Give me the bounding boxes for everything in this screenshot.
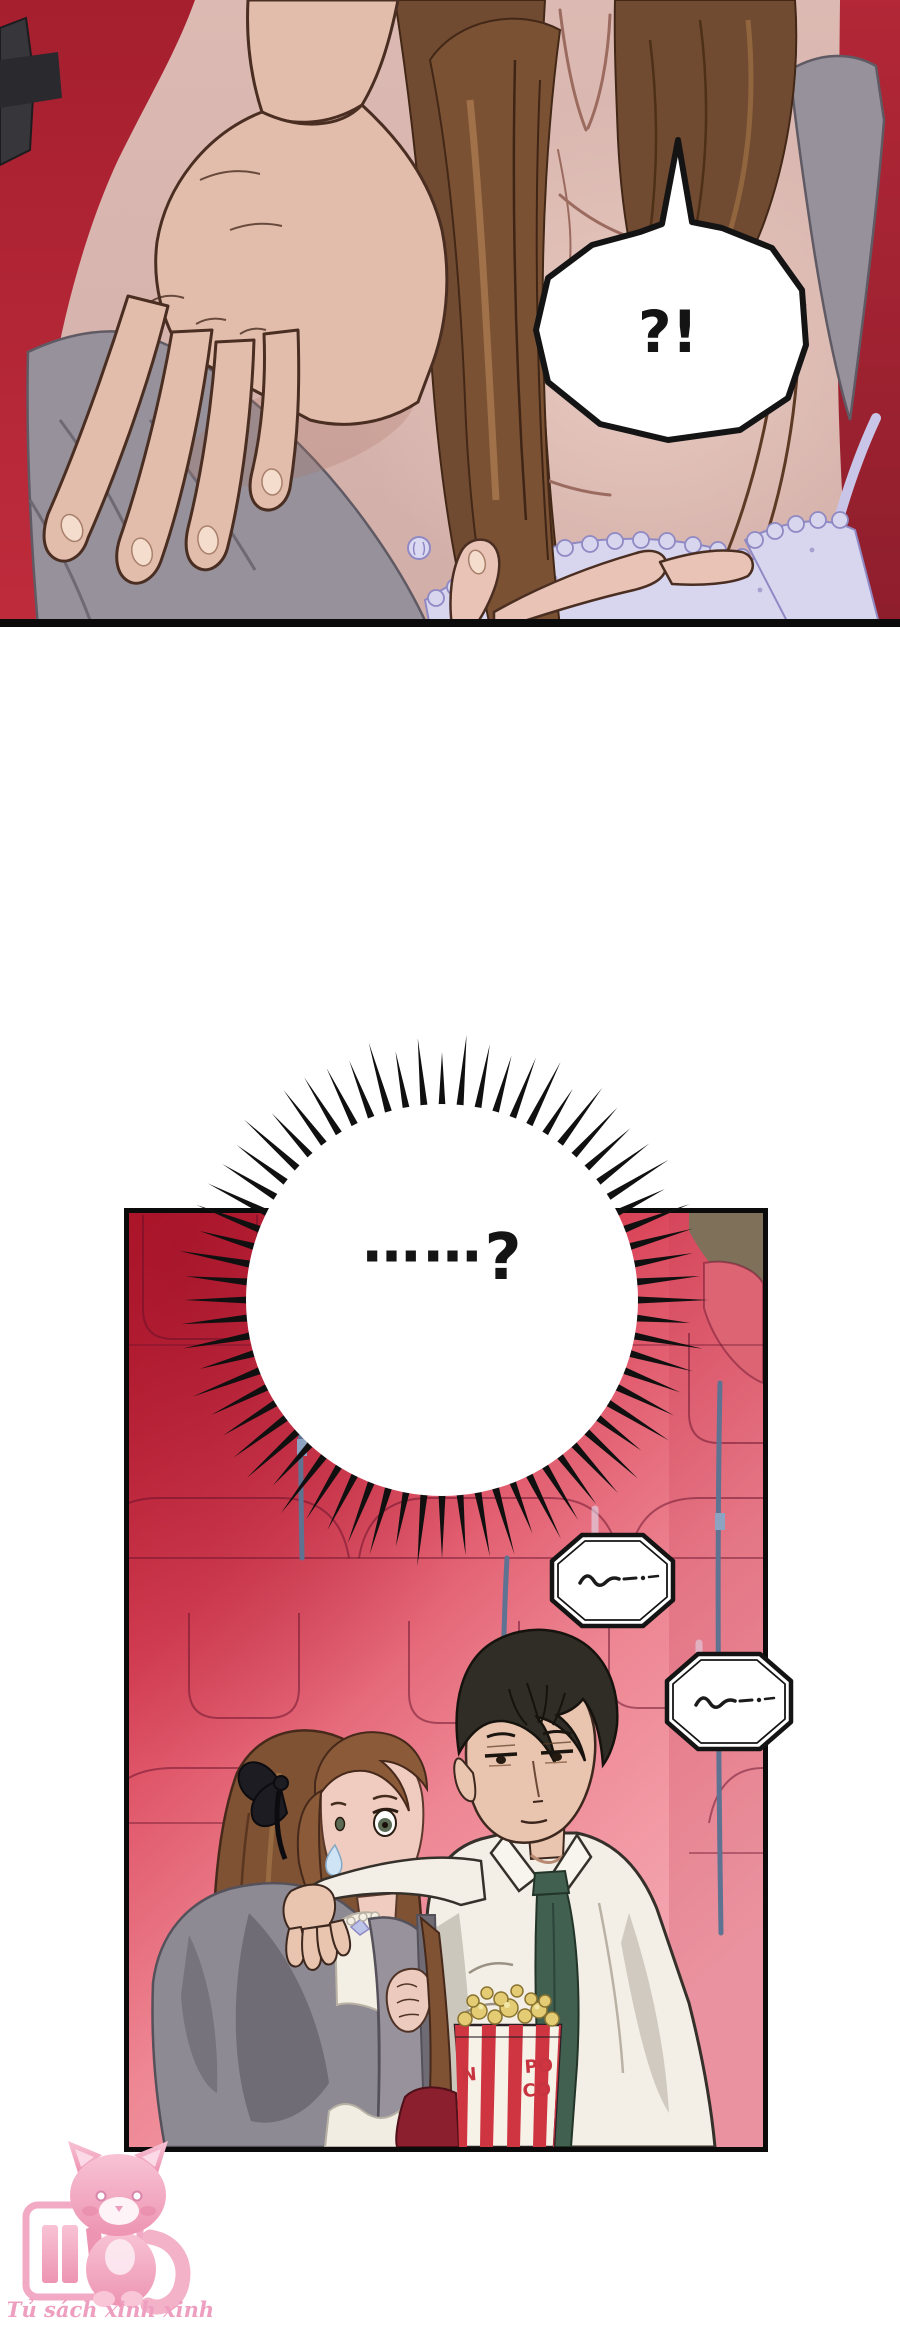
top-panel: ?! — [0, 0, 900, 627]
mumble-bubble-2 — [663, 1650, 795, 1753]
popcorn-letters-right-bottom: CO — [522, 2079, 552, 2102]
watermark: Tủ sách xinh xinh — [8, 2133, 212, 2325]
exclaim-text: ?! — [638, 298, 698, 366]
man-hand-draped — [284, 1885, 336, 1931]
burst-text: ……? — [292, 1218, 592, 1298]
burst-bubble-body — [246, 1104, 638, 1496]
burst-question-mark: ? — [484, 1218, 521, 1298]
popcorn-letter-left: N — [461, 2064, 478, 2086]
popcorn-letters-right-top: PO — [524, 2055, 554, 2078]
watermark-caption: Tủ sách xinh xinh — [8, 2297, 212, 2322]
comic-page: ?! — [0, 0, 900, 2326]
burst-bubble — [142, 1000, 742, 1600]
mumble-bubble-1 — [548, 1531, 677, 1630]
cardigan-button — [408, 537, 430, 559]
pink-cat-bookshelf-icon — [26, 2141, 183, 2307]
burst-dots: …… — [362, 1202, 484, 1282]
top-panel-bottom-border — [0, 619, 900, 627]
